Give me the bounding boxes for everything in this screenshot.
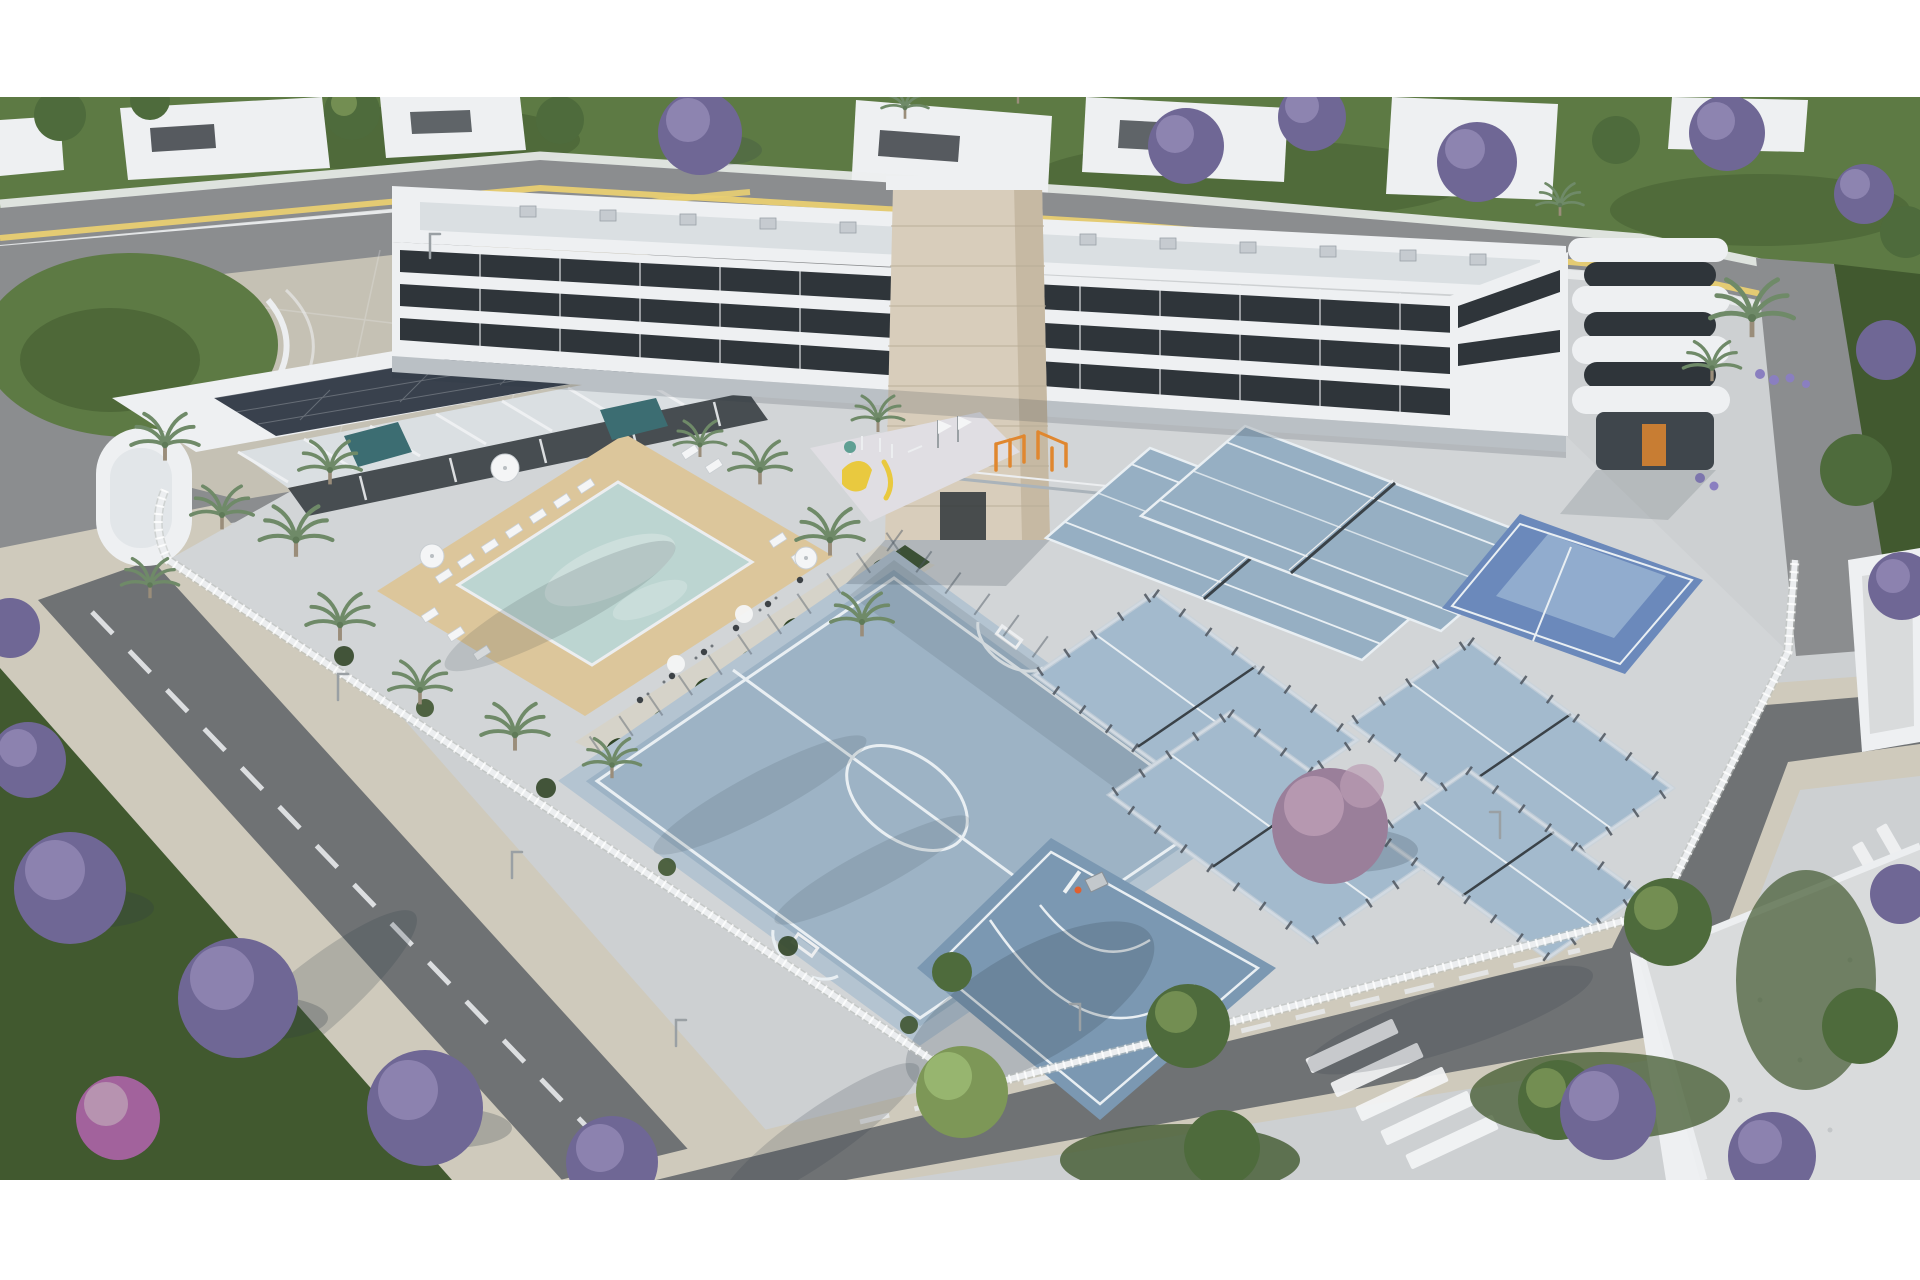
render-image: Aerial 3D architectural render of a resi… <box>0 0 1920 1280</box>
glass-band <box>1584 262 1716 288</box>
tower-base-opening <box>940 492 986 540</box>
letterbox-top <box>0 0 1920 97</box>
balcony-band <box>1572 386 1730 414</box>
tower-roof <box>1568 238 1728 262</box>
balcony-band <box>1572 286 1730 314</box>
tower-parapet <box>886 176 1048 190</box>
play-canopy <box>844 441 856 453</box>
glass-band <box>1584 312 1716 338</box>
aerial-render: Aerial 3D architectural render of a resi… <box>0 0 1920 1280</box>
lit-entrance <box>1642 424 1666 466</box>
letterbox-bottom <box>0 1180 1920 1280</box>
magenta-tree <box>76 1076 160 1160</box>
